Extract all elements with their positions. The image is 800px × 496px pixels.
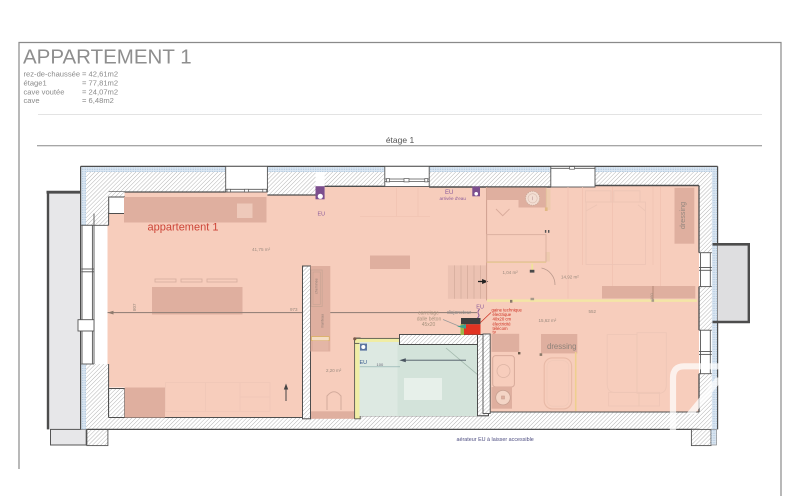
svg-text:1,04 m²: 1,04 m²: [503, 270, 519, 275]
svg-text:EU: EU: [318, 211, 326, 217]
svg-text:aérateur EU à laisser accessib: aérateur EU à laisser accessible: [457, 437, 534, 443]
svg-text:cave: cave: [24, 96, 40, 105]
svg-text:= 6,48m2: = 6,48m2: [82, 96, 114, 105]
svg-text:15,62 m²: 15,62 m²: [539, 318, 557, 323]
svg-text:14,92 m²: 14,92 m²: [561, 275, 579, 280]
svg-text:100: 100: [377, 362, 384, 367]
svg-text:= 77,81m2: = 77,81m2: [82, 79, 118, 88]
svg-text:disjoncteur: disjoncteur: [447, 310, 472, 316]
svg-text:étage1: étage1: [24, 79, 47, 88]
svg-text:dressing: dressing: [547, 342, 576, 351]
svg-text:= 42,61m2: = 42,61m2: [82, 70, 118, 79]
svg-text:cheminée: cheminée: [315, 278, 319, 294]
svg-text:EU: EU: [360, 360, 368, 366]
svg-text:160: 160: [649, 293, 654, 300]
svg-text:arrivée d'eau: arrivée d'eau: [440, 196, 467, 201]
svg-text:807: 807: [132, 303, 137, 311]
svg-text:EU: EU: [476, 304, 484, 310]
svg-text:rez-de-chaussée: rez-de-chaussée: [24, 70, 81, 79]
svg-text:45x20: 45x20: [422, 322, 436, 328]
svg-text:552: 552: [589, 309, 597, 314]
svg-text:manteau: manteau: [321, 314, 325, 328]
svg-text:973: 973: [290, 307, 298, 312]
svg-text:dressing: dressing: [678, 202, 687, 229]
svg-text:APPARTEMENT 1: APPARTEMENT 1: [23, 46, 192, 69]
svg-text:41,75 m²: 41,75 m²: [252, 247, 271, 252]
svg-text:étage 1: étage 1: [386, 135, 415, 145]
svg-text:appartement 1: appartement 1: [148, 222, 219, 234]
svg-text:2,20 m²: 2,20 m²: [326, 368, 342, 373]
